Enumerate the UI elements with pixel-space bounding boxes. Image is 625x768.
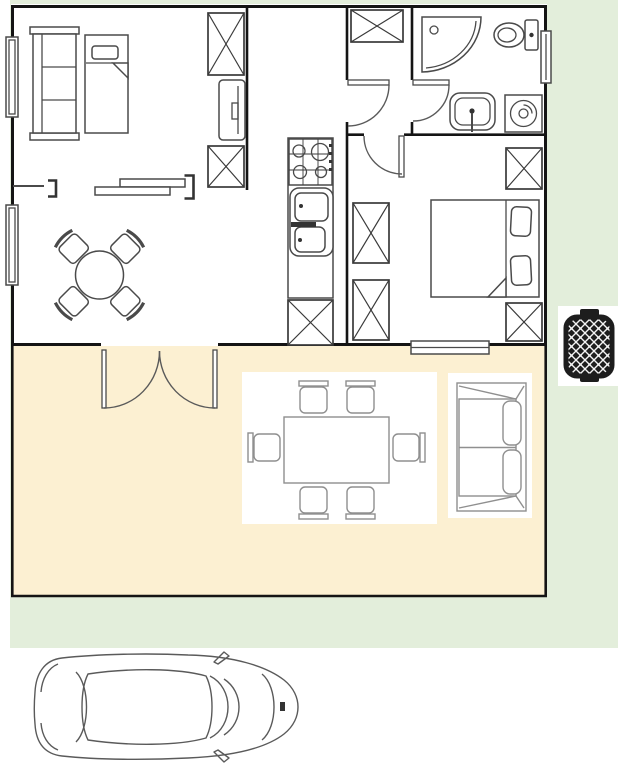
car-windshield-inner <box>224 679 239 735</box>
window-left-top <box>6 37 18 117</box>
car-trunk-lines <box>41 664 58 750</box>
grill-body <box>566 317 612 376</box>
storage-box-bedroom-top <box>506 148 542 189</box>
outdoor-chair-bottom-1 <box>299 487 328 519</box>
window-left-bottom <box>6 205 18 285</box>
wardrobe-box-bedroom-1 <box>353 203 389 263</box>
toilet <box>494 20 538 50</box>
outdoor-dining-table <box>284 417 389 483</box>
outdoor-chair-right <box>393 433 425 462</box>
storage-box-living-bottom <box>208 146 244 187</box>
back-cushion <box>503 450 521 494</box>
outdoor-chair-top-2 <box>346 381 375 413</box>
floor-plan-page <box>0 0 625 768</box>
wash-basin <box>450 93 495 132</box>
bbq-grill <box>566 309 612 382</box>
car-top-view <box>34 652 298 762</box>
outdoor-chair-bottom-2 <box>346 487 375 519</box>
outdoor-chair-top-1 <box>299 381 328 413</box>
back-cushion <box>503 401 521 445</box>
faucet <box>291 222 316 227</box>
floor-plan-drawing <box>0 0 625 768</box>
single-bed <box>85 35 128 133</box>
wardrobe-shelf <box>30 27 79 140</box>
storage-box-living-top <box>208 13 244 75</box>
car-front-emblem <box>280 702 285 711</box>
car-hood-crease <box>262 674 274 740</box>
round-dining-table <box>76 251 124 299</box>
storage-box-kitchen <box>288 300 333 345</box>
car-roof <box>82 670 212 745</box>
bedroom-window <box>411 341 489 354</box>
kitchen-sink <box>290 188 333 256</box>
entry-closet-box <box>351 10 403 42</box>
double-bed <box>431 200 539 297</box>
outdoor-chair-left <box>248 433 280 462</box>
pillow <box>510 206 531 236</box>
washing-machine <box>505 95 542 132</box>
wardrobe-box-bedroom-2 <box>353 280 389 340</box>
pillow <box>92 46 118 59</box>
outdoor-sofa <box>457 383 526 511</box>
stove <box>289 139 332 185</box>
storage-box-bedroom-bottom <box>506 303 542 341</box>
bathroom-window <box>541 31 551 83</box>
pillow <box>510 255 531 285</box>
tv-panel <box>219 80 245 140</box>
